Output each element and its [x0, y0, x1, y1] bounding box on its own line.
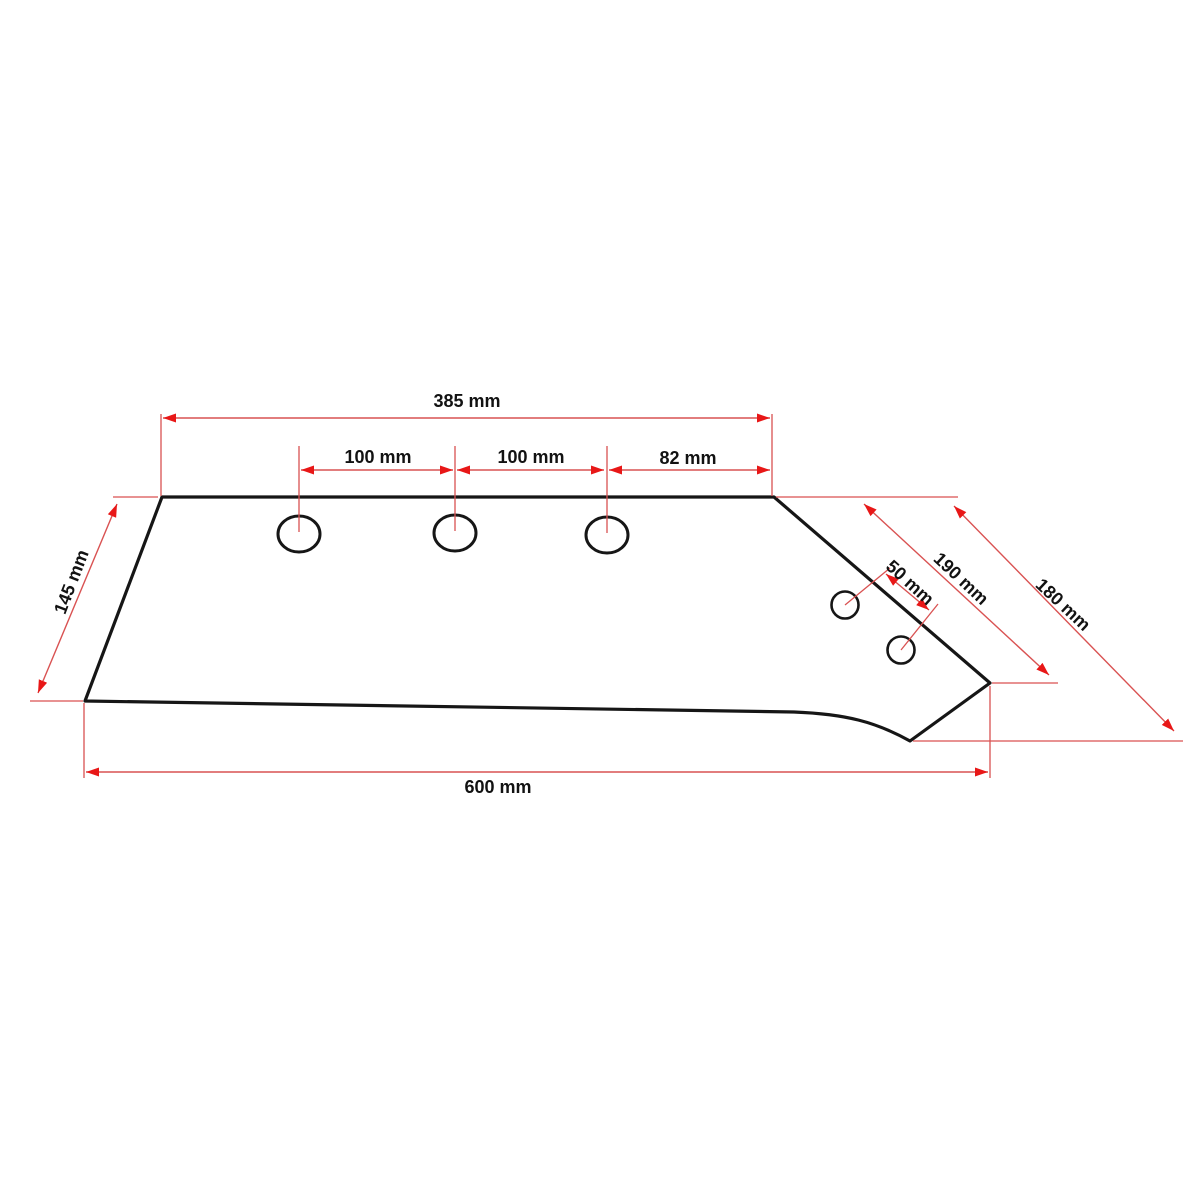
technical-drawing-canvas: 385 mm 100 mm 100 mm 82 mm 145 mm: [0, 0, 1200, 1200]
dim-label-hole-pitch-3: 82 mm: [659, 448, 716, 468]
dim-label-right-edge: 190 mm: [930, 548, 993, 608]
dim-hole-pitch-3: 82 mm: [607, 446, 770, 533]
dim-left-edge: 145 mm: [30, 497, 158, 701]
dim-label-hole-pitch-1: 100 mm: [344, 447, 411, 467]
dim-label-right-diagonal: 180 mm: [1032, 574, 1095, 634]
dim-right-diagonal: 180 mm: [913, 506, 1183, 741]
dimension-line: [38, 504, 117, 693]
leader-line: [845, 568, 890, 605]
dim-label-bottom-width: 600 mm: [464, 777, 531, 797]
blade-dimension-drawing: 385 mm 100 mm 100 mm 82 mm 145 mm: [0, 0, 1200, 1200]
dim-label-left-edge: 145 mm: [50, 547, 93, 617]
dim-label-hole-pitch-2: 100 mm: [497, 447, 564, 467]
dim-hole-pitch-2: 100 mm: [455, 446, 604, 531]
dim-hole-pitch-1: 100 mm: [299, 446, 453, 532]
blade-outline: [85, 497, 990, 741]
dim-top-width: 385 mm: [161, 391, 772, 496]
dim-label-top-width: 385 mm: [433, 391, 500, 411]
dimension-line: [864, 504, 1049, 675]
